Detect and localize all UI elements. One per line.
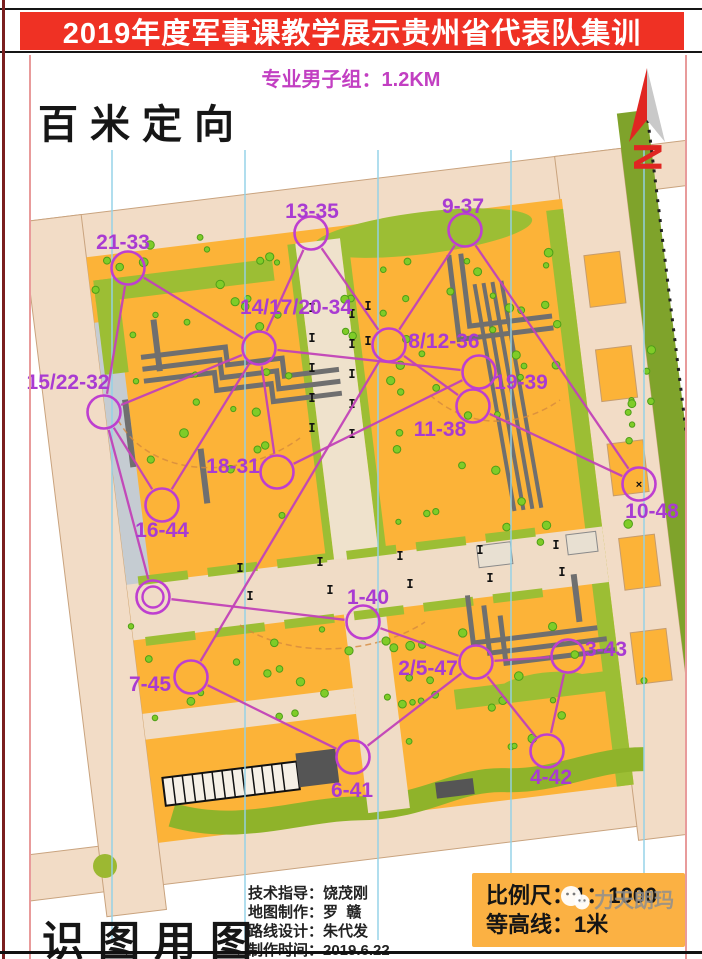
tree-dot — [279, 512, 285, 518]
bench-symbol: I — [308, 391, 315, 405]
tree-dot — [512, 351, 520, 359]
tree-dot — [147, 456, 154, 463]
control-label: 16-44 — [135, 519, 189, 542]
tree-dot — [403, 296, 409, 302]
bench-symbol: I — [308, 421, 315, 435]
bench-symbol: I — [236, 561, 243, 575]
tree-dot — [396, 430, 403, 437]
bench-symbol: I — [316, 555, 323, 569]
title-bottom-rule — [0, 51, 702, 53]
control-label: 18-31 — [206, 455, 260, 478]
x-marker: × — [636, 479, 642, 491]
tree-dot — [92, 286, 99, 293]
control-label: 14/17/20-34 — [240, 296, 352, 319]
tree-dot — [492, 466, 500, 474]
tree-dot — [380, 310, 386, 316]
tree-dot — [542, 521, 550, 529]
tree-dot — [231, 298, 239, 306]
control-label: 4-42 — [530, 766, 572, 789]
tree-dot — [558, 712, 566, 720]
map-frame-right — [685, 55, 687, 959]
north-arrow-gray-half — [647, 68, 665, 142]
tree-dot — [399, 700, 407, 708]
tree-dot — [133, 379, 138, 384]
bench-symbol: I — [364, 334, 371, 348]
tree-dot — [648, 398, 655, 405]
bench-symbol: I — [348, 337, 355, 351]
bench-symbol: I — [396, 549, 403, 563]
tree-dot — [521, 363, 527, 369]
tree-dot — [104, 257, 111, 264]
bench-symbol: I — [348, 367, 355, 381]
tree-dot — [254, 446, 261, 453]
tree-dot — [262, 442, 269, 449]
tree-dot — [433, 385, 440, 392]
tree-dot — [252, 408, 260, 416]
map-base-layer — [0, 104, 702, 931]
tree-dot — [216, 280, 224, 288]
tree-dot — [626, 438, 632, 444]
tree-dot — [447, 288, 454, 295]
control-label: 7-45 — [129, 673, 171, 696]
tree-dot — [390, 644, 398, 652]
map-frame-left — [29, 55, 31, 959]
tree-dot — [647, 346, 655, 354]
tree-dot — [382, 637, 390, 645]
tree-dot — [180, 429, 189, 438]
bottom-rule — [0, 951, 702, 954]
tree-dot — [549, 622, 557, 630]
tree-dot — [274, 260, 279, 265]
tree-dot — [256, 323, 264, 331]
tree-dot — [271, 639, 279, 647]
tree-dot — [145, 656, 152, 663]
tree-dot — [406, 739, 412, 745]
tree-dot — [474, 268, 482, 276]
tree-dot — [257, 257, 264, 264]
watermark: 力天朗玛 — [558, 884, 674, 913]
control-label: 3-43 — [585, 638, 627, 661]
small-building — [566, 531, 598, 555]
control-label: 8/12-36 — [408, 330, 479, 353]
control-label: 1-40 — [347, 586, 389, 609]
tree-dot — [490, 293, 495, 298]
tree-dot — [629, 422, 634, 427]
tree-dot — [231, 406, 236, 411]
tree-dot — [410, 700, 416, 706]
tree-dot — [387, 377, 395, 385]
credits-block: 技术指导：饶茂刚 地图制作：罗 赣 路线设计：朱代发 制作时间：2019.6.2… — [248, 884, 390, 959]
bench-symbol: I — [308, 361, 315, 375]
tree-dot — [393, 446, 401, 454]
watermark-text: 力天朗玛 — [594, 884, 674, 913]
tree-dot — [398, 389, 404, 395]
tree-dot — [554, 321, 561, 328]
tree-dot — [459, 462, 466, 469]
tree-dot — [406, 641, 415, 650]
tree-dot — [233, 659, 239, 665]
tree-dot — [204, 247, 209, 252]
tree-dot — [116, 263, 124, 271]
tree-dot — [424, 510, 430, 516]
bench-symbol: I — [486, 571, 493, 585]
tree-dot — [153, 312, 158, 317]
bench-symbol: I — [246, 589, 253, 603]
tree-dot — [550, 698, 555, 703]
poster-title: 2019年度军事课教学展示贵州省代表队集训 — [63, 10, 642, 52]
tree-dot — [518, 498, 526, 506]
tree-dot — [464, 258, 470, 264]
tree-dot — [571, 651, 579, 659]
tree-dot — [542, 301, 549, 308]
bench-symbol: I — [406, 577, 413, 591]
tree-dot — [381, 267, 387, 273]
tree-dot — [459, 629, 467, 637]
tree-dot — [292, 710, 299, 717]
wechat-icon — [558, 885, 592, 913]
tree-dot — [505, 304, 513, 312]
control-label: 15/22-32 — [27, 371, 110, 394]
control-label: 13-35 — [285, 200, 339, 223]
tree-dot — [193, 399, 199, 405]
tree-dot — [319, 627, 324, 632]
tree-dot — [628, 400, 636, 408]
tree-dot — [184, 319, 190, 325]
street-tree — [93, 854, 117, 878]
tree-dot — [433, 509, 439, 515]
tree-dot — [384, 694, 390, 700]
tree-dot — [488, 704, 495, 711]
tree-dot — [321, 689, 329, 697]
tree-dot — [537, 539, 544, 546]
control-label: 10-48 — [625, 500, 679, 523]
page-edge-line — [2, 0, 5, 959]
control-label: 11-38 — [414, 418, 467, 441]
control-label: 21-33 — [96, 231, 150, 254]
tree-dot — [296, 678, 304, 686]
tree-dot — [187, 697, 195, 705]
tree-dot — [625, 409, 631, 415]
contour-text: 等高线：1米 — [486, 910, 685, 939]
tree-dot — [544, 248, 553, 257]
tree-dot — [512, 743, 517, 748]
tree-dot — [404, 258, 411, 265]
tree-dot — [128, 624, 133, 629]
title-banner: 2019年度军事课教学展示贵州省代表队集训 — [20, 12, 684, 50]
bench-symbol: I — [308, 331, 315, 345]
control-label: 6-41 — [331, 779, 373, 802]
north-arrow: N — [602, 62, 682, 187]
control-label: 9-37 — [442, 195, 484, 218]
tree-dot — [197, 235, 203, 241]
control-label: 19-39 — [494, 371, 548, 394]
north-letter: N — [625, 143, 669, 172]
tree-dot — [543, 263, 548, 268]
tree-dot — [286, 373, 292, 379]
tree-dot — [130, 332, 136, 338]
course-subtitle: 专业男子组：1.2KM — [0, 63, 702, 92]
bench-symbol: I — [552, 538, 559, 552]
north-arrow-red-half — [629, 68, 647, 142]
bench-symbol: I — [558, 565, 565, 579]
tree-dot — [263, 369, 270, 376]
tree-dot — [503, 523, 511, 531]
bench-symbol: I — [326, 583, 333, 597]
map-type-label: 百米定向 — [38, 92, 246, 150]
orienteering-map-poster: IIIIIIIIIIIIIIIIIIIIII 1-402/5-473-434-4… — [0, 0, 702, 959]
tree-dot — [515, 672, 524, 681]
tree-dot — [396, 519, 401, 524]
tree-dot — [152, 715, 158, 721]
bench-symbol: I — [476, 543, 483, 557]
tree-dot — [342, 328, 348, 334]
tree-dot — [276, 666, 283, 673]
tree-dot — [264, 670, 271, 677]
tree-dot — [345, 647, 353, 655]
tree-dot — [490, 327, 496, 333]
control-label: 2/5-47 — [398, 657, 458, 680]
tree-dot — [266, 253, 274, 261]
